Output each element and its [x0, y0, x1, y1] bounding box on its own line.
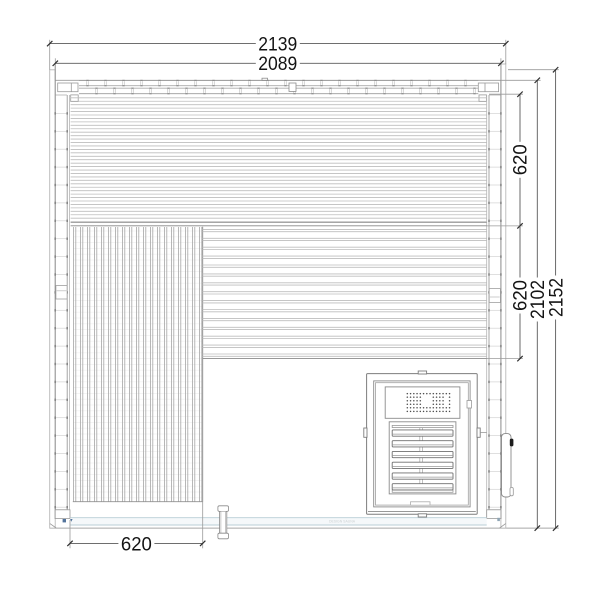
svg-text:2139: 2139 — [258, 33, 297, 55]
svg-text:2089: 2089 — [258, 53, 297, 75]
svg-text:620: 620 — [510, 144, 532, 175]
svg-text:2152: 2152 — [545, 278, 567, 317]
svg-text:620: 620 — [121, 534, 152, 556]
svg-text:DESIGN SAUNA: DESIGN SAUNA — [329, 519, 355, 524]
